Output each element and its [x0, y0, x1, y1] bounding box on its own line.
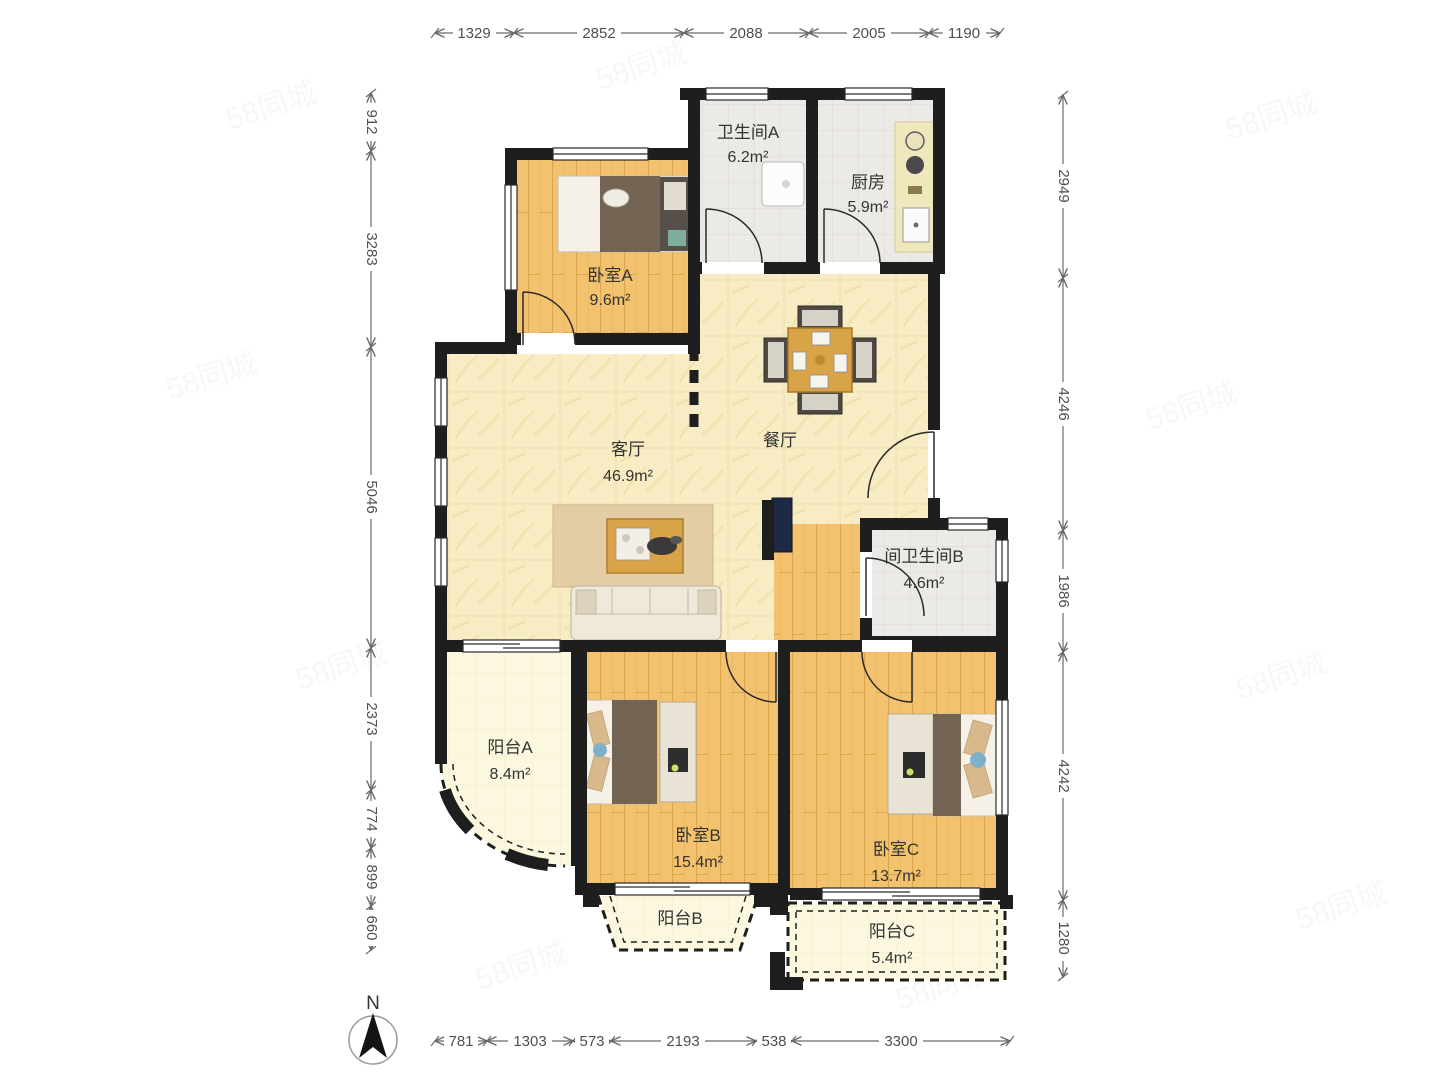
room-area-living-room: 46.9m² — [603, 468, 653, 485]
dim-left-6: 660 — [363, 915, 380, 940]
dim-bottom-2: 573 — [579, 1033, 604, 1050]
dim-left-4: 774 — [363, 806, 380, 831]
tv — [772, 498, 792, 552]
room-label-living-room: 客厅 — [611, 440, 645, 459]
dim-left-5: 899 — [363, 864, 380, 889]
dim-left-0: 912 — [363, 109, 380, 134]
window-bathroom-a-top — [706, 88, 768, 100]
room-area-bathroom-a: 6.2m² — [728, 149, 770, 166]
room-label-kitchen: 厨房 — [851, 173, 885, 192]
living-rug — [553, 505, 713, 587]
room-area-balcony-c: 5.4m² — [872, 950, 914, 967]
floor-plan-page: 58同城 58同城 58同城 58同城 58同城 58同城 58同城 58同城 … — [0, 0, 1440, 1080]
bed-b — [583, 700, 657, 804]
dim-bottom-0: 781 — [448, 1033, 473, 1050]
floor-plan: 58同城 58同城 58同城 58同城 58同城 58同城 58同城 58同城 … — [0, 0, 1440, 1080]
dim-top-0: 1329 — [457, 25, 490, 42]
dim-bottom-4: 538 — [761, 1033, 786, 1050]
dim-left-3: 2373 — [363, 702, 380, 735]
room-label-bedroom-c: 卧室C — [873, 840, 919, 859]
room-area-balcony-a: 8.4m² — [490, 766, 532, 783]
room-label-balcony-a: 阳台A — [487, 738, 533, 757]
room-area-bathroom-b: 4.6m² — [904, 575, 946, 592]
room-area-bedroom-c: 13.7m² — [871, 868, 921, 885]
dim-right-3: 4242 — [1055, 759, 1072, 792]
window-bedroom-a-top — [553, 148, 648, 160]
dim-right-4: 1280 — [1055, 921, 1072, 954]
window-bedroom-a-left — [505, 185, 517, 290]
dim-right-1: 4246 — [1055, 387, 1072, 420]
window-living-balcony-a — [463, 640, 560, 652]
kitchen-counter — [895, 122, 935, 252]
dim-top-1: 2852 — [582, 25, 615, 42]
room-label-balcony-c: 阳台C — [869, 922, 915, 941]
wardrobe-c — [888, 714, 933, 814]
bed-a — [558, 176, 690, 252]
dim-left-1: 3283 — [363, 232, 380, 265]
window-living-left-2 — [435, 458, 447, 506]
room-label-dining-room: 餐厅 — [763, 431, 797, 450]
dim-left-2: 5046 — [363, 480, 380, 513]
room-label-bedroom-b: 卧室B — [675, 826, 720, 845]
dim-bottom-3: 2193 — [666, 1033, 699, 1050]
room-label-bathroom-b: 间卫生间B — [884, 547, 963, 566]
room-label-bedroom-a: 卧室A — [587, 266, 633, 285]
toilet-a — [762, 162, 804, 206]
room-label-bathroom-a: 卫生间A — [717, 123, 780, 142]
dim-bottom-1: 1303 — [513, 1033, 546, 1050]
room-area-bedroom-a: 9.6m² — [590, 292, 632, 309]
bed-c — [933, 714, 1003, 816]
dim-top-4: 1190 — [948, 25, 980, 42]
room-label-balcony-b: 阳台B — [657, 909, 702, 928]
room-area-bedroom-b: 15.4m² — [673, 854, 723, 871]
window-bedroom-b-balcony — [615, 883, 750, 895]
dim-bottom-5: 3300 — [884, 1033, 917, 1050]
window-bathroom-b-right — [996, 540, 1008, 582]
dim-top-3: 2005 — [852, 25, 885, 42]
sofa — [571, 586, 721, 640]
window-bedroom-c-right — [996, 700, 1008, 815]
window-living-left-1 — [435, 378, 447, 426]
dim-right-0: 2949 — [1055, 169, 1072, 202]
room-area-kitchen: 5.9m² — [848, 199, 890, 216]
wardrobe-b — [660, 702, 696, 802]
dim-top-2: 2088 — [729, 25, 762, 42]
window-bedroom-c-balcony — [822, 888, 980, 900]
balcony-c-floor — [788, 903, 1005, 980]
window-kitchen-top — [845, 88, 912, 100]
dim-right-2: 1986 — [1055, 574, 1072, 607]
window-bathroom-b-top — [948, 518, 988, 530]
compass-north-label: N — [366, 993, 380, 1014]
window-living-left-3 — [435, 538, 447, 586]
